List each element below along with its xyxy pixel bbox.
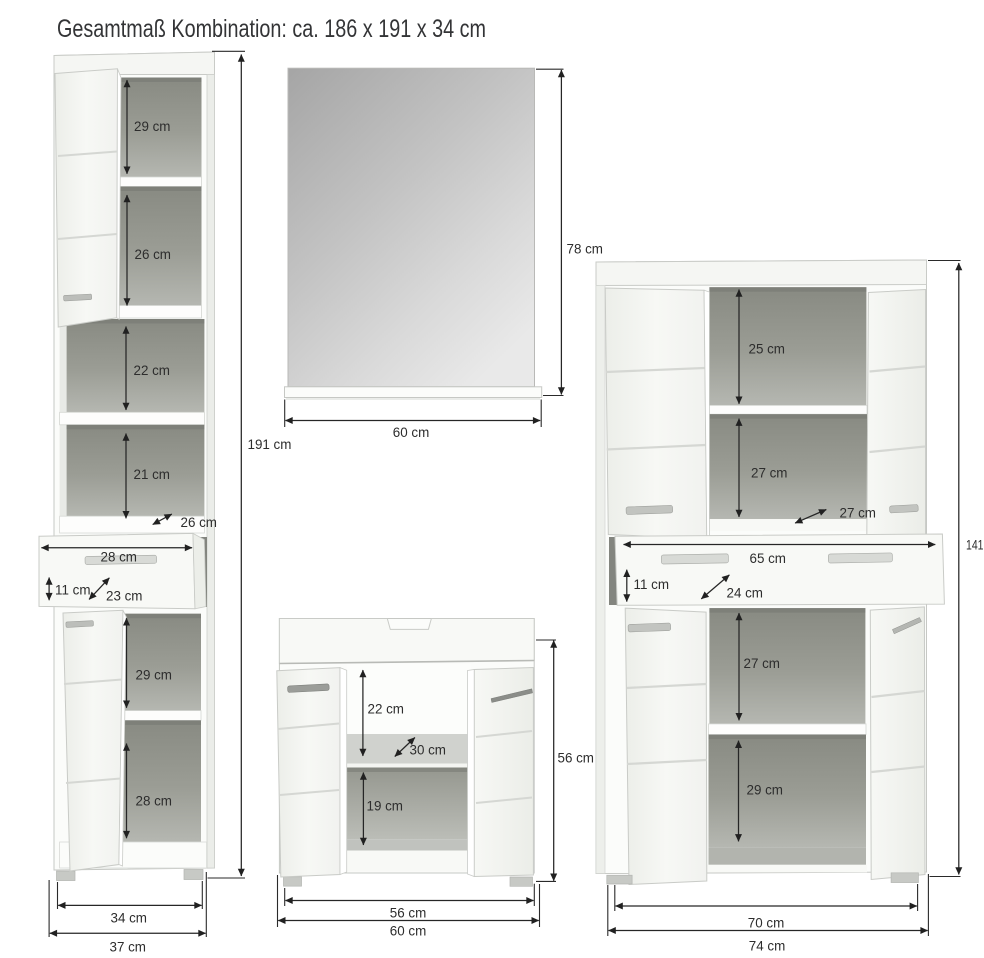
svg-text:23 cm: 23 cm <box>106 589 142 604</box>
svg-text:29 cm: 29 cm <box>136 668 172 683</box>
svg-text:30 cm: 30 cm <box>410 743 446 758</box>
svg-text:27 cm: 27 cm <box>744 656 780 671</box>
svg-text:29 cm: 29 cm <box>134 119 170 134</box>
svg-text:28 cm: 28 cm <box>136 794 172 809</box>
svg-text:65 cm: 65 cm <box>750 551 786 566</box>
svg-text:26 cm: 26 cm <box>181 515 217 530</box>
svg-text:34 cm: 34 cm <box>111 911 147 926</box>
svg-text:56 cm: 56 cm <box>390 906 426 921</box>
svg-text:28 cm: 28 cm <box>101 550 137 565</box>
svg-text:Gesamtmaß Kombination: ca. 186: Gesamtmaß Kombination: ca. 186 x 191 x 3… <box>57 15 486 43</box>
svg-text:25 cm: 25 cm <box>749 342 785 357</box>
svg-text:70 cm: 70 cm <box>748 916 784 931</box>
svg-text:74 cm: 74 cm <box>749 939 785 954</box>
svg-text:56 cm: 56 cm <box>558 751 594 766</box>
svg-text:60 cm: 60 cm <box>390 924 426 939</box>
svg-text:11 cm: 11 cm <box>55 583 90 598</box>
svg-text:19 cm: 19 cm <box>367 799 403 814</box>
svg-text:24 cm: 24 cm <box>727 586 763 601</box>
svg-text:22 cm: 22 cm <box>134 363 170 378</box>
svg-text:60 cm: 60 cm <box>393 425 429 440</box>
svg-text:29 cm: 29 cm <box>747 783 783 798</box>
svg-text:21 cm: 21 cm <box>134 467 170 482</box>
svg-text:141: 141 <box>966 538 984 553</box>
svg-text:37 cm: 37 cm <box>110 940 146 955</box>
svg-text:26 cm: 26 cm <box>135 247 171 262</box>
svg-text:27 cm: 27 cm <box>751 466 787 481</box>
svg-text:22 cm: 22 cm <box>368 702 404 717</box>
svg-text:78 cm: 78 cm <box>567 242 603 257</box>
svg-text:11 cm: 11 cm <box>634 577 669 592</box>
svg-text:191 cm: 191 cm <box>248 437 292 452</box>
svg-text:27 cm: 27 cm <box>840 506 876 521</box>
